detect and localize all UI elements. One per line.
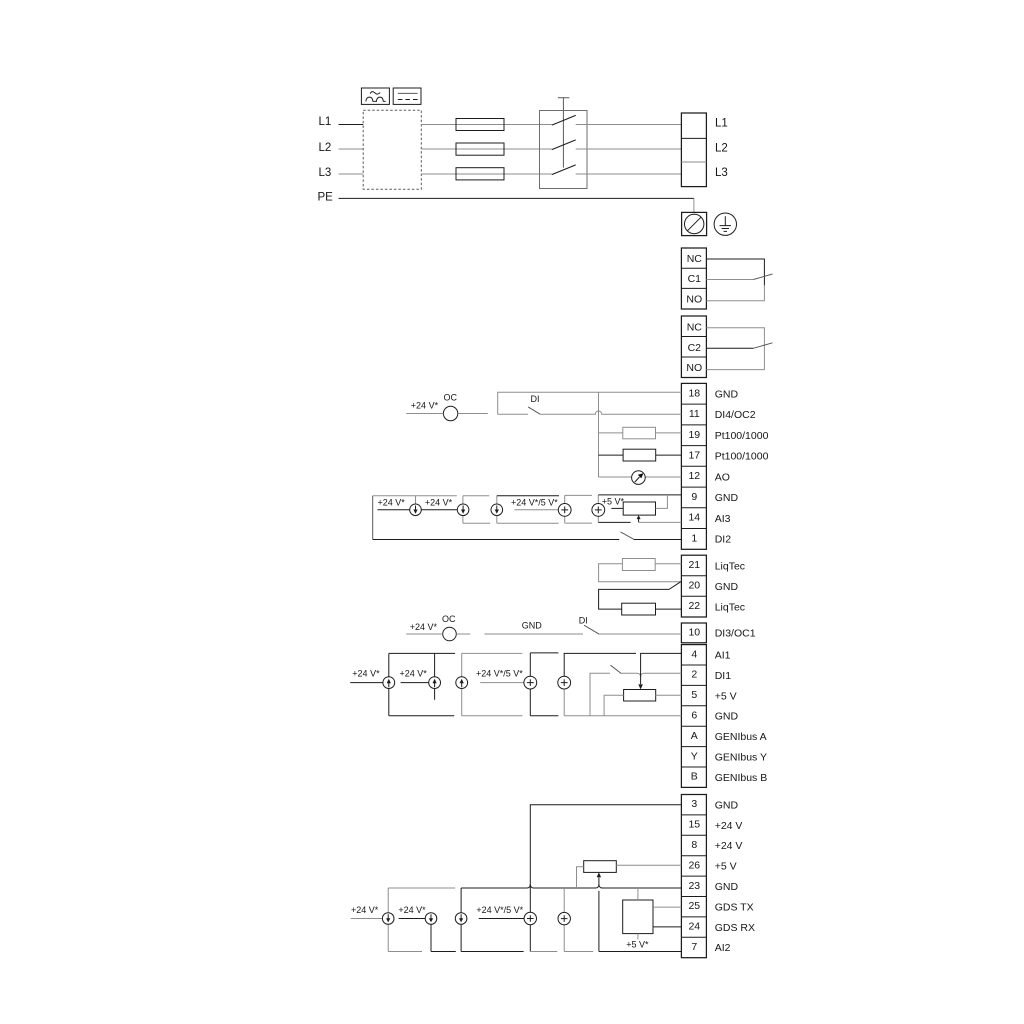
- svg-text:+24 V: +24 V: [715, 820, 743, 832]
- svg-text:3: 3: [691, 798, 697, 810]
- svg-text:+24 V*: +24 V*: [425, 498, 453, 508]
- svg-text:DI: DI: [579, 616, 588, 626]
- svg-text:6: 6: [691, 710, 697, 722]
- svg-text:GDS RX: GDS RX: [715, 922, 755, 934]
- svg-text:22: 22: [688, 600, 700, 612]
- svg-text:12: 12: [688, 470, 700, 482]
- svg-text:+24 V: +24 V: [715, 840, 743, 852]
- svg-text:L2: L2: [319, 142, 332, 154]
- svg-text:NO: NO: [686, 362, 702, 374]
- svg-text:23: 23: [688, 880, 700, 892]
- svg-text:+24 V*/5 V*: +24 V*/5 V*: [511, 498, 558, 508]
- svg-text:GENIbus Y: GENIbus Y: [715, 752, 767, 764]
- svg-text:20: 20: [688, 580, 700, 592]
- svg-text:+24 V*: +24 V*: [378, 498, 406, 508]
- svg-text:DI2: DI2: [715, 534, 732, 546]
- svg-text:25: 25: [688, 900, 700, 912]
- svg-text:LiqTec: LiqTec: [715, 560, 745, 572]
- svg-text:10: 10: [688, 626, 700, 638]
- svg-text:+24 V*/5 V*: +24 V*/5 V*: [476, 669, 523, 679]
- svg-text:+24 V*: +24 V*: [398, 905, 426, 915]
- svg-text:GND: GND: [715, 389, 739, 401]
- svg-text:OC: OC: [442, 614, 456, 624]
- svg-text:PE: PE: [318, 192, 334, 204]
- svg-text:B: B: [691, 771, 698, 783]
- svg-text:2: 2: [691, 669, 697, 681]
- svg-text:GND: GND: [715, 881, 739, 893]
- svg-text:DI: DI: [531, 394, 540, 404]
- svg-text:19: 19: [688, 429, 700, 441]
- svg-text:GND: GND: [715, 581, 739, 593]
- svg-text:C1: C1: [688, 273, 702, 285]
- svg-text:L3: L3: [715, 167, 728, 179]
- svg-text:+5 V*: +5 V*: [602, 497, 625, 507]
- svg-text:DI1: DI1: [715, 670, 732, 682]
- svg-text:GENIbus A: GENIbus A: [715, 731, 767, 743]
- svg-text:8: 8: [691, 839, 697, 851]
- svg-text:LiqTec: LiqTec: [715, 601, 745, 613]
- svg-text:L3: L3: [319, 167, 332, 179]
- svg-text:24: 24: [688, 921, 700, 933]
- svg-text:GND: GND: [715, 799, 739, 811]
- svg-text:7: 7: [691, 941, 697, 953]
- svg-text:+24 V*: +24 V*: [351, 905, 379, 915]
- svg-text:26: 26: [688, 859, 700, 871]
- svg-text:9: 9: [691, 491, 697, 503]
- svg-text:+5 V*: +5 V*: [626, 939, 649, 949]
- svg-text:Pt100/1000: Pt100/1000: [715, 430, 769, 442]
- svg-text:+5 V: +5 V: [715, 861, 737, 873]
- svg-text:NC: NC: [687, 321, 703, 333]
- svg-text:A: A: [691, 730, 698, 742]
- svg-text:NC: NC: [687, 253, 703, 265]
- svg-text:L1: L1: [319, 116, 332, 128]
- svg-text:GND: GND: [522, 620, 543, 630]
- svg-text:15: 15: [688, 819, 700, 831]
- svg-text:DI3/OC1: DI3/OC1: [715, 628, 756, 640]
- svg-text:L2: L2: [715, 143, 728, 155]
- svg-text:1: 1: [691, 532, 697, 544]
- svg-text:+24 V*: +24 V*: [410, 622, 438, 632]
- svg-text:14: 14: [688, 512, 700, 524]
- svg-text:+24 V*: +24 V*: [400, 669, 428, 679]
- svg-text:GND: GND: [715, 711, 739, 723]
- svg-text:18: 18: [688, 387, 700, 399]
- svg-text:AI3: AI3: [715, 513, 731, 525]
- svg-text:AI1: AI1: [715, 650, 731, 662]
- svg-text:GDS TX: GDS TX: [715, 901, 754, 913]
- svg-text:+5 V: +5 V: [715, 690, 737, 702]
- svg-text:DI4/OC2: DI4/OC2: [715, 409, 756, 421]
- svg-text:Pt100/1000: Pt100/1000: [715, 451, 769, 463]
- svg-text:17: 17: [688, 450, 700, 462]
- svg-text:AI2: AI2: [715, 942, 731, 954]
- svg-text:GENIbus B: GENIbus B: [715, 772, 768, 784]
- svg-text:AO: AO: [715, 471, 730, 483]
- svg-text:Y: Y: [691, 750, 698, 762]
- svg-text:11: 11: [689, 408, 700, 420]
- svg-text:C2: C2: [688, 342, 702, 354]
- svg-text:5: 5: [691, 689, 697, 701]
- svg-text:+24 V*: +24 V*: [352, 669, 380, 679]
- svg-text:+24 V*/5 V*: +24 V*/5 V*: [476, 905, 523, 915]
- svg-text:+24 V*: +24 V*: [411, 401, 439, 411]
- svg-text:NO: NO: [686, 293, 702, 305]
- svg-text:4: 4: [691, 648, 697, 660]
- svg-text:21: 21: [688, 559, 700, 571]
- svg-text:GND: GND: [715, 492, 739, 504]
- svg-text:L1: L1: [715, 118, 728, 130]
- svg-text:OC: OC: [444, 392, 458, 402]
